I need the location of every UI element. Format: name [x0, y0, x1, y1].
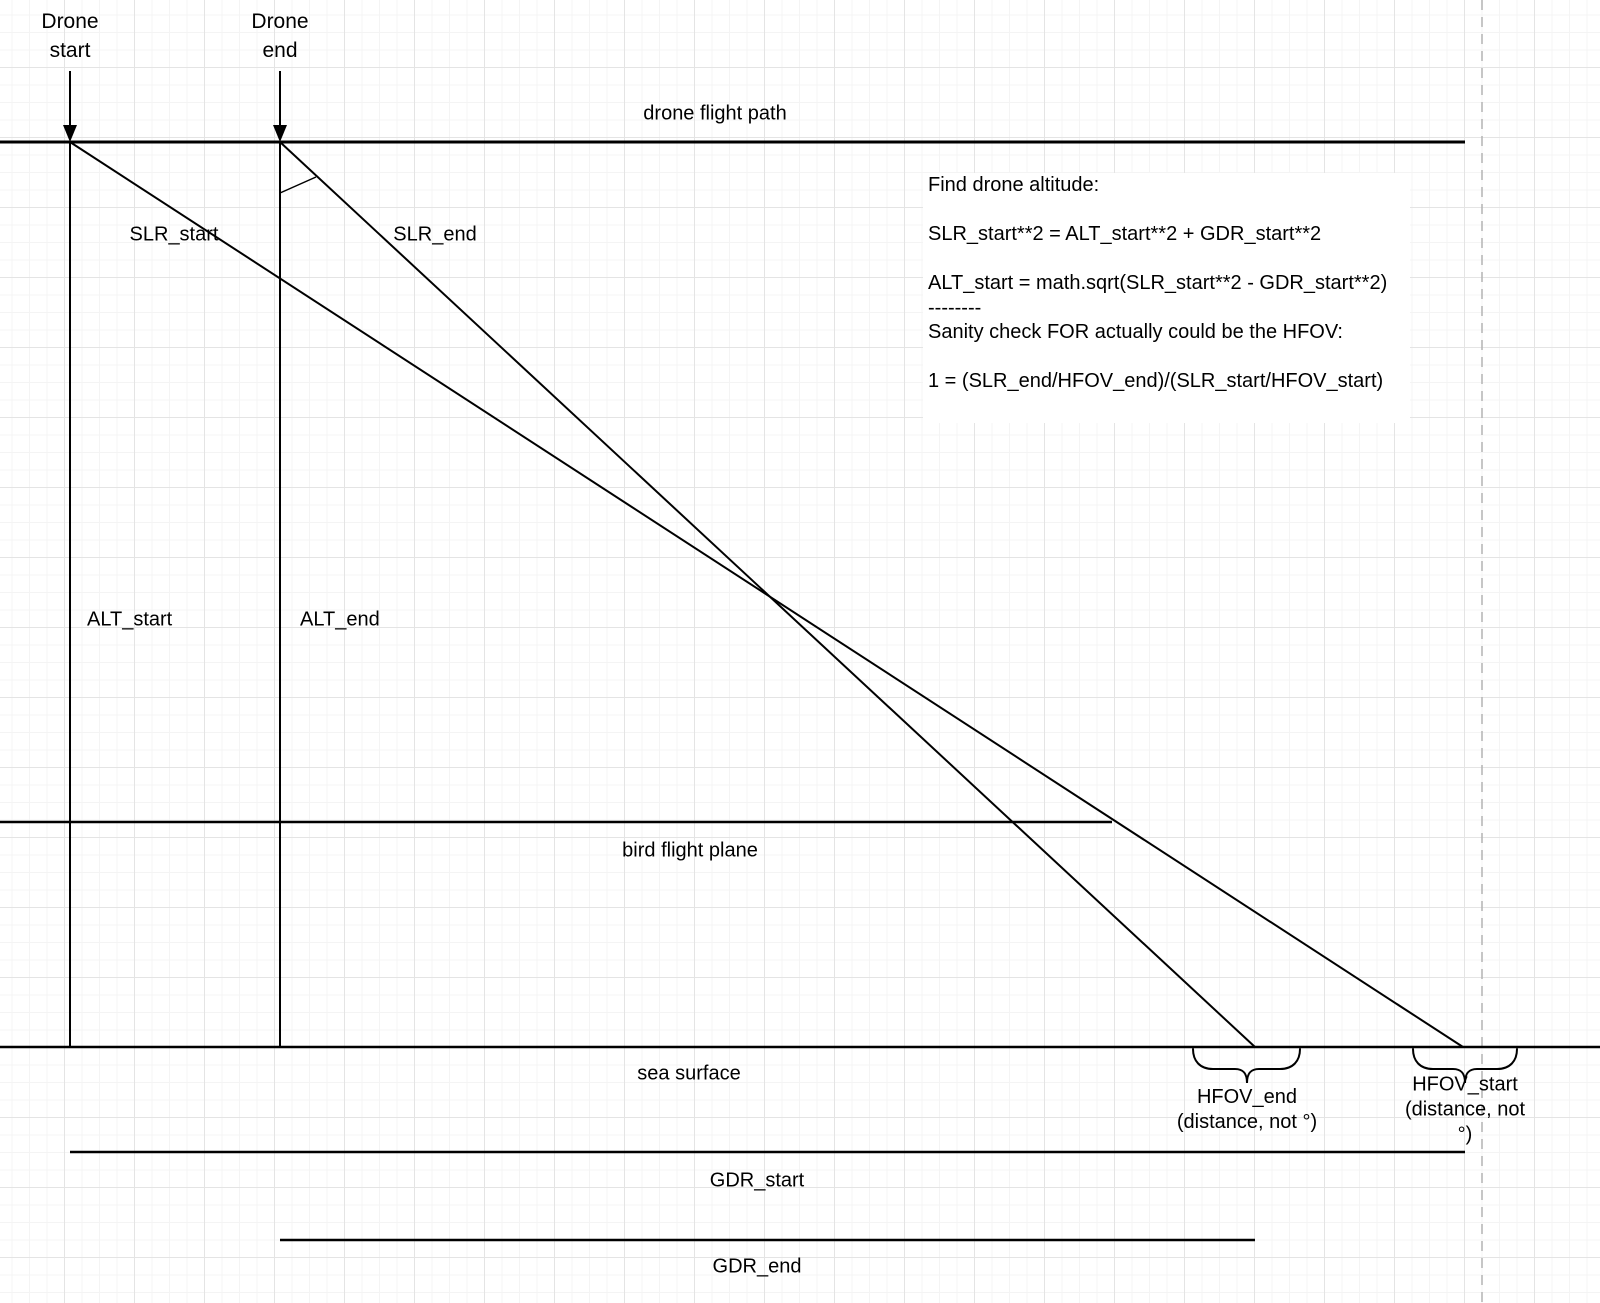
drone-flight-path-label: drone flight path [643, 102, 786, 127]
alt-start-label: ALT_start [87, 608, 172, 633]
drone-end-arrowhead-icon [273, 125, 287, 142]
gdr-end-label: GDR_end [713, 1255, 802, 1280]
slr-start-label: SLR_start [130, 223, 219, 248]
gdr-start-label: GDR_start [710, 1169, 804, 1194]
hfov-end-label: HFOV_end (distance, not °) [1177, 1085, 1317, 1135]
slr-end-label: SLR_end [393, 223, 476, 248]
drone-start-arrowhead-icon [63, 125, 77, 142]
drone-start-label: Drone start [41, 7, 98, 65]
alt-end-label: ALT_end [300, 608, 380, 633]
angle-tick [280, 177, 316, 193]
drone-end-label: Drone end [251, 7, 308, 65]
sea-surface-label: sea surface [637, 1062, 740, 1087]
altitude-formula-note: Find drone altitude: SLR_start**2 = ALT_… [923, 173, 1410, 423]
hfov-end-brace [1193, 1049, 1300, 1083]
hfov-start-label: HFOV_start (distance, not °) [1398, 1073, 1533, 1148]
diagram-canvas: Drone start Drone end drone flight path … [0, 0, 1600, 1303]
bird-flight-plane-label: bird flight plane [622, 839, 758, 864]
